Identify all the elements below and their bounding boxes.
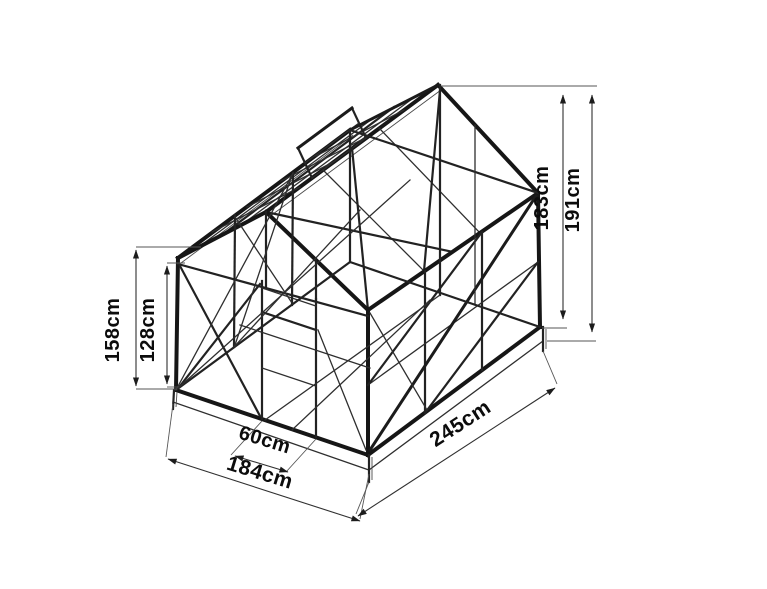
greenhouse-dimension-diagram: 158cm 128cm 183cm 191cm 60cm <box>0 0 767 589</box>
dim-label-183cm: 183cm <box>531 166 553 231</box>
dimension-side-depth: 245cm <box>356 351 557 516</box>
dim-label-184cm: 184cm <box>224 452 296 494</box>
dim-label-128cm: 128cm <box>137 298 159 363</box>
back-structure <box>350 85 540 327</box>
dimension-right-outer-height: 191cm <box>547 95 596 341</box>
interior-braces <box>176 180 440 430</box>
door-opening <box>262 281 316 437</box>
front-gable-face <box>176 212 368 455</box>
greenhouse-wireframe-svg: 158cm 128cm 183cm 191cm 60cm <box>0 0 767 589</box>
dim-label-191cm: 191cm <box>562 168 584 233</box>
dim-label-158cm: 158cm <box>102 298 124 363</box>
